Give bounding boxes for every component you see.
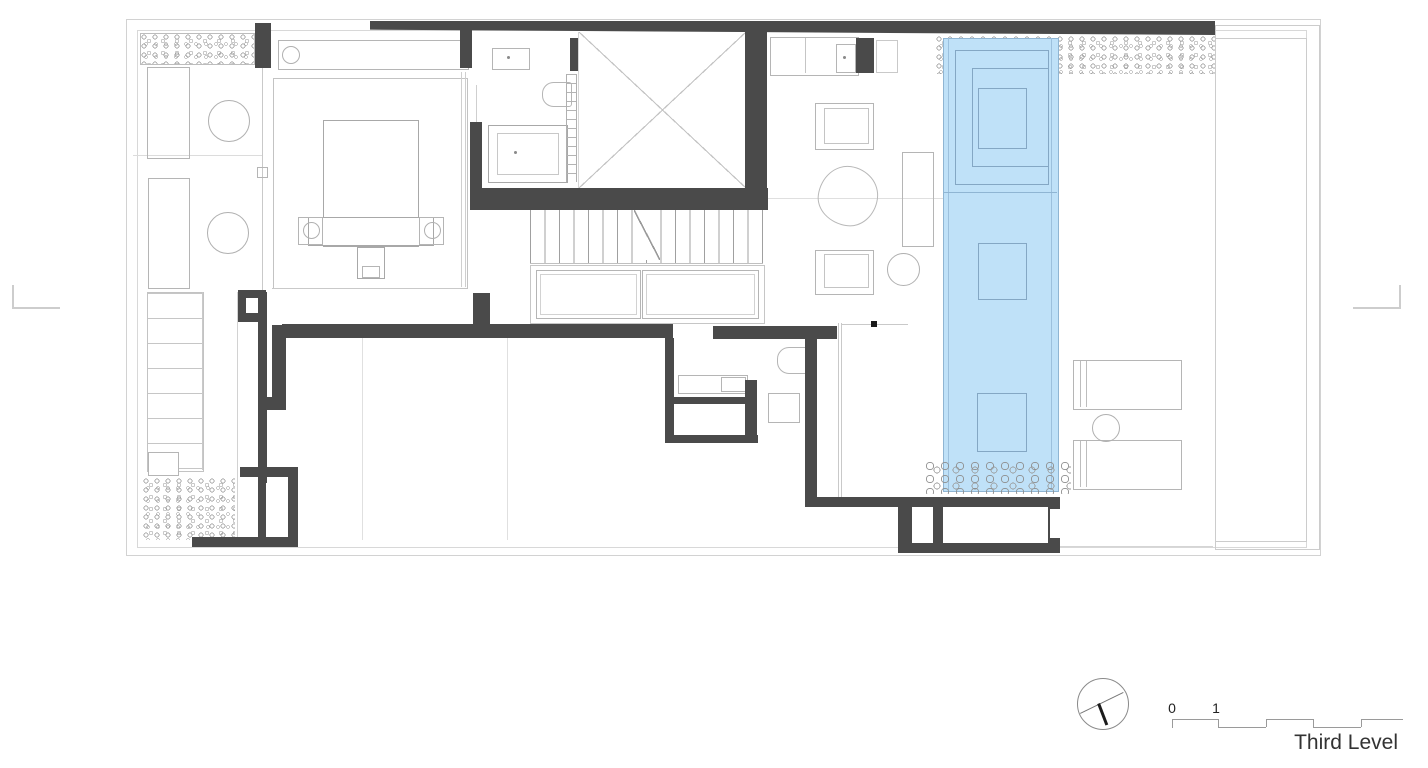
wardrobe-front-line [202, 292, 203, 470]
bedside-lamp [303, 222, 320, 239]
pool-platform [977, 393, 1027, 452]
shower-drain [514, 151, 517, 154]
armchair-cushion [824, 254, 869, 288]
lounge-chair [1073, 440, 1182, 490]
wall-stub [473, 293, 490, 327]
terrace-outline-inner [1215, 38, 1307, 542]
kitchenette-sink [836, 44, 856, 73]
wall-closet-top [672, 397, 748, 404]
pool-pebble-band [925, 461, 1071, 494]
pool-divider [943, 192, 1057, 193]
lounge-chair-backrest [1080, 361, 1081, 407]
wardrobe [147, 292, 204, 472]
north-arrow [1077, 678, 1129, 730]
wall-corridor-right [805, 326, 817, 502]
wall-vertical-mid [665, 338, 674, 443]
bed-stool-seat [362, 266, 380, 278]
sink-drain [843, 56, 846, 59]
wall-top-left-block [255, 23, 271, 68]
scale-label-0: 0 [1166, 700, 1178, 716]
vanity-sink [721, 377, 746, 392]
bedroom-glass-east [465, 72, 466, 287]
wall-left-step [266, 397, 286, 410]
terrace-table [207, 212, 249, 254]
bench [902, 152, 934, 247]
wall-void-bottom [470, 188, 768, 210]
stair-break-line [634, 210, 660, 260]
lounge-chair-backrest [1080, 441, 1081, 487]
terrace-table [208, 100, 250, 142]
pool-edge-line [1051, 38, 1052, 490]
glass-wall-line [262, 35, 263, 290]
floor-plan: 0 1 Third Level [0, 0, 1428, 768]
wall-band-right [713, 326, 837, 339]
wall-bottomleft-bottom [192, 537, 298, 547]
storage-box [148, 452, 179, 476]
deck-joint-line [362, 338, 363, 540]
terrace-bottom-line [1060, 546, 1213, 547]
sink-drain [507, 56, 510, 59]
scale-bar-segment [1266, 719, 1313, 720]
wall-kitchen-block [856, 38, 874, 73]
registration-mark-left [12, 307, 60, 309]
corridor-glass [841, 323, 842, 497]
registration-mark-right [1399, 285, 1401, 309]
registration-mark-left [12, 285, 14, 309]
column-marker [871, 321, 877, 327]
room-small [912, 507, 933, 543]
corridor-line [237, 292, 238, 538]
lounge-chair-backrest [1086, 441, 1087, 487]
console-basin [282, 46, 300, 64]
console-cabinet [278, 40, 469, 70]
closet-inner [646, 274, 755, 315]
scale-bar-step [1218, 719, 1219, 727]
planter-box [148, 178, 190, 289]
wall-left-vertical [258, 292, 267, 483]
scale-bar-segment [1172, 719, 1218, 720]
closet-inner [540, 274, 637, 315]
bed-foot-band [308, 217, 434, 246]
lounge-chair-backrest [1086, 361, 1087, 407]
wall-closet-right [745, 380, 757, 443]
corridor-glass [838, 323, 839, 497]
scale-bar-step [1266, 719, 1267, 727]
shower-tray-2 [768, 393, 800, 423]
wall-bottomleft-top [240, 467, 298, 477]
planter-box [147, 67, 190, 159]
side-table [887, 253, 920, 286]
room-plant [943, 507, 1048, 543]
pool-platform [978, 88, 1027, 149]
bathtub [777, 347, 808, 374]
planting-bed-top-left [140, 33, 255, 65]
armchair-cushion [824, 108, 869, 144]
glass-wall-marker [257, 167, 268, 178]
void-skylight [578, 32, 746, 188]
pool-side-table [1092, 414, 1120, 442]
page-title: Third Level [1240, 731, 1398, 755]
registration-mark-right [1353, 307, 1401, 309]
counter-divider [805, 38, 806, 73]
lounge-chair [1073, 360, 1182, 410]
wall-bottomleft-v2 [288, 477, 298, 539]
scale-bar-step [1361, 719, 1362, 727]
bathroom-sink [492, 48, 530, 70]
planting-bed-bottom-left [143, 478, 235, 540]
wall-bath-left-mid [470, 122, 482, 210]
wall-band-center [282, 324, 673, 338]
shower-tray [497, 133, 559, 175]
wall-bottomleft-v1 [258, 477, 266, 539]
bedside-lamp [424, 222, 441, 239]
wall-void-right [745, 32, 767, 210]
pool-edge-line [948, 38, 949, 490]
scale-label-1: 1 [1210, 700, 1222, 716]
bedroom-glass-east [461, 72, 462, 287]
kitchenette-cabinet [876, 40, 898, 73]
shower-glass-door [566, 74, 577, 182]
scale-bar-segment [1361, 719, 1403, 720]
scale-bar-tick [1172, 719, 1173, 728]
wall-bath-divider [570, 38, 578, 71]
bedroom-glass-south [272, 288, 460, 289]
scale-bar-step [1313, 719, 1314, 727]
chimney-flue [246, 298, 258, 313]
scale-bar-segment [1313, 727, 1361, 728]
deck-joint-line [507, 338, 508, 540]
scale-bar-segment [1218, 727, 1266, 728]
pool-platform [978, 243, 1027, 300]
wall-bath-left-top [460, 26, 472, 68]
door-gap [1050, 509, 1060, 538]
